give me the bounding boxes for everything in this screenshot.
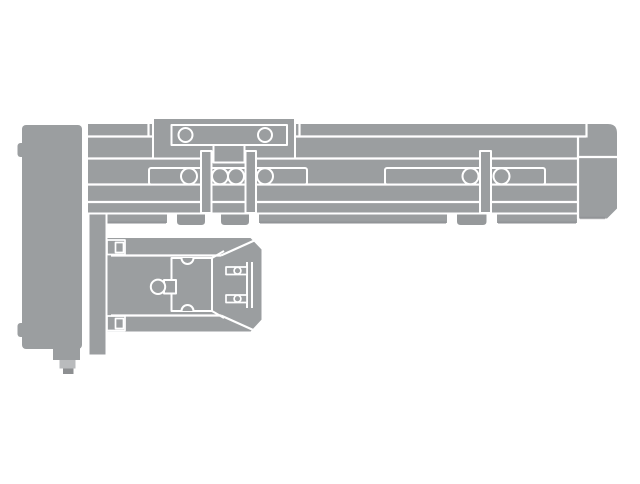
clamp-bar-3: [480, 151, 491, 213]
center-notch-bottom: [182, 305, 194, 311]
foot-2: [220, 214, 250, 227]
carriage: [153, 118, 295, 163]
roller-5: [463, 168, 479, 184]
carriage-tab: [214, 145, 245, 163]
connector-pin: [63, 369, 74, 375]
slider-center-block: [172, 258, 213, 311]
center-notch-top: [182, 258, 194, 264]
figure-canvas: Gray technical line drawing of an electr…: [0, 0, 640, 484]
slider-table: [107, 237, 263, 333]
actuator-drawing: Gray technical line drawing of an electr…: [0, 0, 640, 484]
bracket-screw-bottom: [234, 295, 241, 302]
slider-clip-bottom-notch: [116, 319, 124, 329]
clamp-bar-2: [246, 151, 257, 213]
foot-3: [456, 214, 488, 227]
slider-clip-top-notch: [116, 243, 124, 253]
carriage-hole-right: [258, 128, 272, 142]
motor-housing: [18, 125, 83, 374]
foot-1: [176, 214, 206, 227]
roller-3: [228, 168, 244, 184]
clamp-bar-1: [201, 151, 212, 213]
roller-4: [257, 168, 273, 184]
roller-1: [181, 168, 197, 184]
mounting-plate: [89, 214, 107, 356]
slider-circle: [151, 280, 165, 294]
roller-2: [212, 168, 228, 184]
roller-6: [494, 168, 510, 184]
housing-body: [22, 125, 82, 349]
carriage-hole-left: [179, 128, 193, 142]
connector-boss: [53, 347, 80, 360]
connector-plug: [60, 360, 76, 369]
bracket-screw-top: [234, 267, 241, 274]
